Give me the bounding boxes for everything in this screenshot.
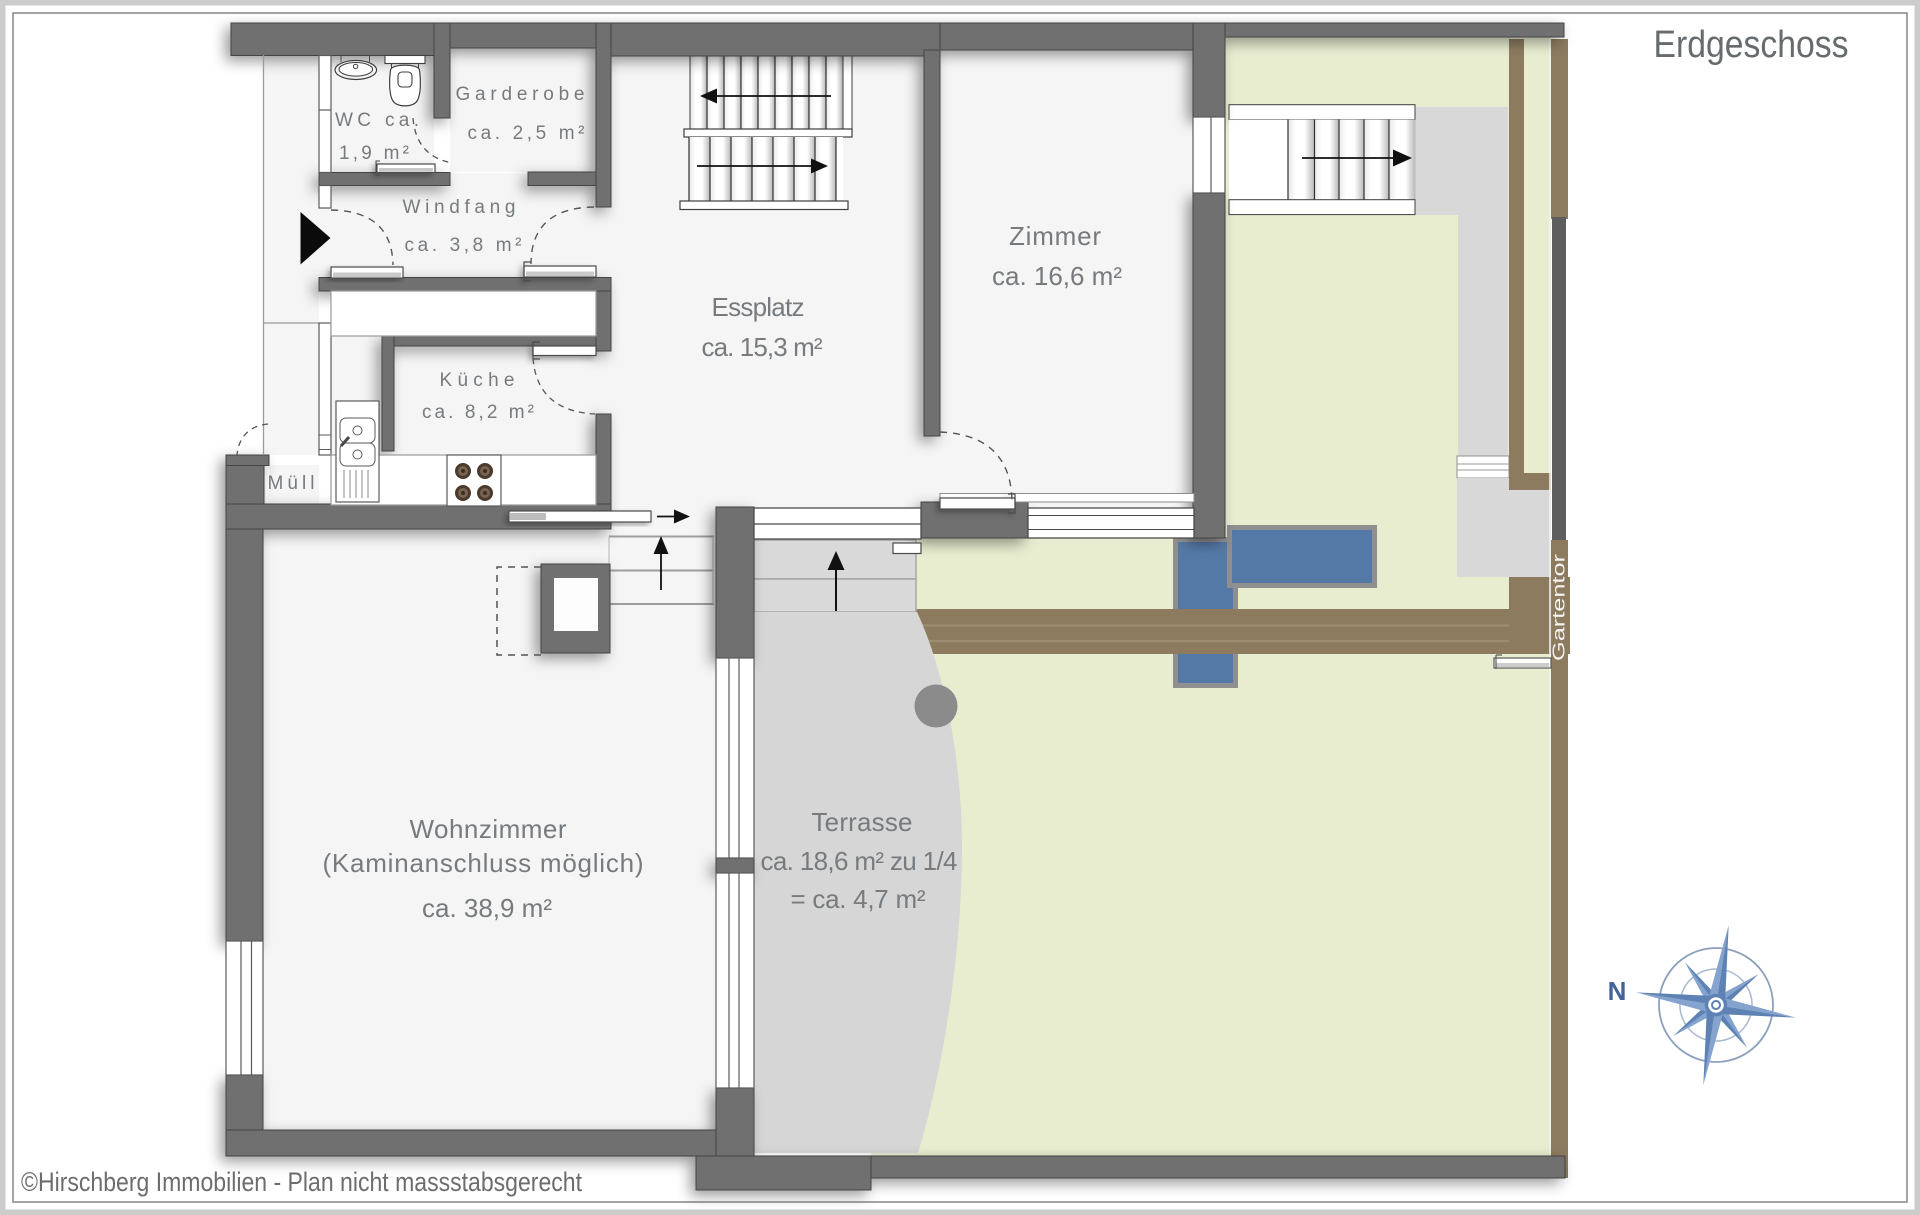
svg-text:ca. 15,3 m²: ca. 15,3 m² — [702, 332, 823, 362]
svg-text:ca. 18,6 m² zu 1/4: ca. 18,6 m² zu 1/4 — [761, 846, 958, 876]
svg-text:= ca. 4,7 m²: = ca. 4,7 m² — [791, 884, 926, 914]
svg-text:Terrasse: Terrasse — [812, 807, 913, 837]
svg-text:ca. 8,2 m²: ca. 8,2 m² — [422, 402, 534, 423]
svg-text:Garderobe: Garderobe — [456, 84, 585, 105]
svg-text:Küche: Küche — [440, 370, 515, 391]
svg-text:(Kaminanschluss möglich): (Kaminanschluss möglich) — [323, 848, 644, 878]
svg-text:Erdgeschoss: Erdgeschoss — [1654, 24, 1849, 66]
svg-text:N: N — [1608, 976, 1627, 1006]
svg-text:ca. 16,6 m²: ca. 16,6 m² — [992, 261, 1122, 291]
svg-text:Wohnzimmer: Wohnzimmer — [410, 814, 567, 844]
svg-text:Gartentor: Gartentor — [1549, 554, 1569, 661]
svg-text:ca. 2,5 m²: ca. 2,5 m² — [468, 123, 585, 144]
svg-text:ca. 38,9 m²: ca. 38,9 m² — [422, 893, 552, 923]
svg-text:WC ca.: WC ca. — [335, 110, 419, 131]
svg-text:ca. 3,8 m²: ca. 3,8 m² — [405, 235, 522, 256]
svg-text:Zimmer: Zimmer — [1009, 221, 1101, 251]
svg-text:Essplatz: Essplatz — [712, 292, 805, 322]
svg-text:Windfang: Windfang — [403, 197, 516, 218]
svg-text:©Hirschberg Immobilien - Plan: ©Hirschberg Immobilien - Plan nicht mass… — [21, 1167, 582, 1197]
